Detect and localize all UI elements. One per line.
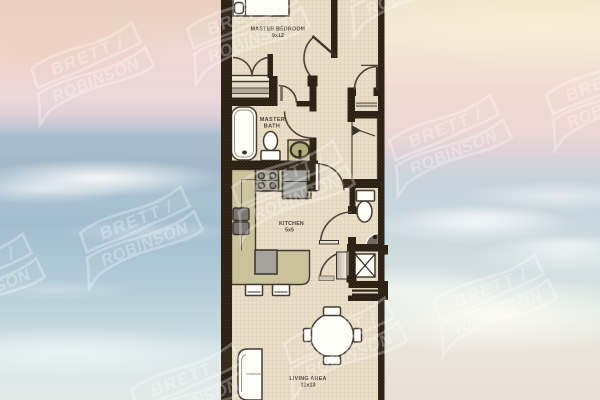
svg-text:MASTER: MASTER [260, 117, 286, 123]
svg-text:5x5: 5x5 [285, 228, 294, 234]
svg-text:BATH: BATH [264, 124, 280, 130]
svg-text:KITCHEN: KITCHEN [279, 221, 304, 227]
